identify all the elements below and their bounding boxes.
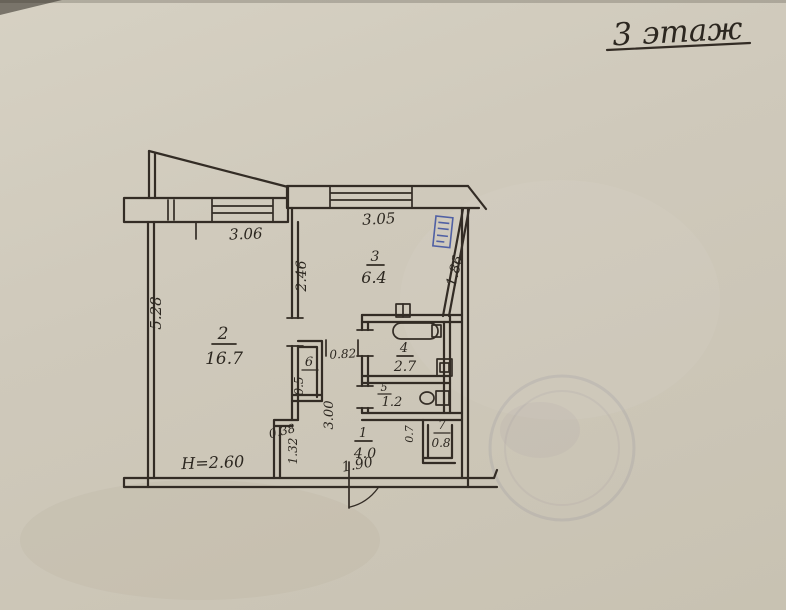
dim-closet7-width: 0.7 bbox=[403, 425, 416, 443]
triangle-left-wall bbox=[149, 151, 155, 198]
room-7-number: 7 bbox=[438, 418, 446, 432]
room-5-area: 1.2 bbox=[382, 395, 403, 410]
room-3-area: 6.4 bbox=[361, 268, 386, 287]
left-outer-wall bbox=[148, 222, 154, 487]
dim-kitchen-width: 3.05 bbox=[362, 209, 396, 229]
room-2-number: 2 bbox=[217, 324, 229, 344]
bath-toilet-divider bbox=[362, 376, 450, 383]
slanted-roof-line bbox=[149, 151, 288, 187]
dim-passage-width: 0.82 bbox=[329, 346, 356, 361]
dim-room2-depth: 5.28 bbox=[147, 296, 165, 329]
room-4-number: 4 bbox=[399, 341, 408, 356]
dim-corridor-length: 3.00 bbox=[322, 401, 337, 430]
toilet-door-ticks bbox=[357, 386, 373, 408]
room-2-area: 16.7 bbox=[205, 349, 243, 369]
dim-hall-width: 1.90 bbox=[341, 454, 375, 475]
paper-mottle bbox=[20, 480, 380, 600]
wall-joint-tick bbox=[168, 200, 174, 220]
toilet-cistern bbox=[436, 391, 449, 405]
bathroom-door-ticks bbox=[357, 330, 373, 356]
ceiling-height-note: H=2.60 bbox=[180, 452, 245, 473]
room-5-number: 5 bbox=[381, 381, 388, 394]
room2-top-wall bbox=[124, 198, 287, 222]
room2-window bbox=[212, 198, 273, 222]
toilet-bottom-wall bbox=[362, 413, 462, 420]
kitchen-top-wall bbox=[287, 186, 486, 209]
dim-room2-width: 3.06 bbox=[229, 224, 263, 243]
room-1-number: 1 bbox=[359, 426, 367, 441]
room-6-area: 0.5 bbox=[292, 376, 306, 395]
dim-niche-height: 1.32 bbox=[286, 438, 300, 465]
kitchen-window bbox=[330, 186, 412, 208]
room-7-area: 0.8 bbox=[431, 436, 450, 450]
toilet-bowl bbox=[420, 392, 434, 404]
room-4-area: 2.7 bbox=[393, 359, 416, 375]
entrance-door-arc bbox=[350, 488, 378, 507]
room-6-number: 6 bbox=[305, 355, 313, 370]
dim-kitchen-depth: 2.46 bbox=[294, 260, 310, 292]
room-3-number: 3 bbox=[371, 249, 380, 265]
floor-plan-drawing: 3 этаж 2 16.7 3 6.4 4 2.7 5 1.2 6 0.5 1 … bbox=[0, 0, 786, 610]
scanned-floor-plan-page: 3 этаж 2 16.7 3 6.4 4 2.7 5 1.2 6 0.5 1 … bbox=[0, 0, 786, 610]
photo-top-edge bbox=[0, 0, 786, 3]
